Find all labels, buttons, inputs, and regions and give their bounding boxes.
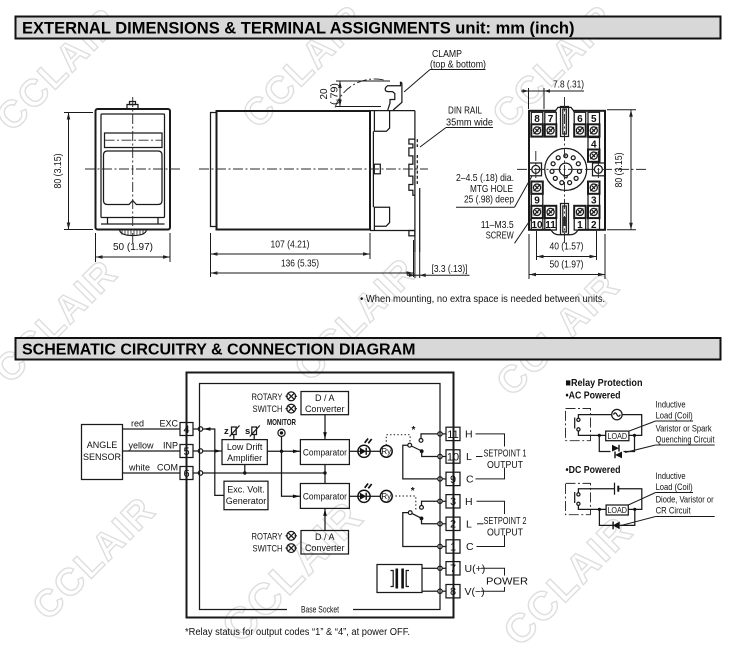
svg-text:4: 4 — [183, 424, 189, 436]
svg-text:3: 3 — [450, 496, 456, 508]
svg-text:Comparator: Comparator — [303, 448, 347, 458]
svg-text:*Relay status for output codes: *Relay status for output codes “1” & “4”… — [185, 627, 410, 638]
svg-text:white: white — [128, 463, 150, 473]
svg-text:OUTPUT: OUTPUT — [487, 527, 523, 539]
svg-text:Ry: Ry — [381, 447, 391, 456]
svg-text:SWITCH: SWITCH — [253, 544, 283, 554]
svg-text:INP: INP — [163, 441, 178, 451]
svg-text:OUTPUT: OUTPUT — [487, 459, 523, 471]
svg-text:(.79): (.79) — [329, 83, 341, 105]
svg-text:LOAD: LOAD — [607, 505, 627, 515]
svg-text:10: 10 — [531, 220, 543, 231]
svg-text:2: 2 — [450, 519, 456, 531]
svg-text:Ry: Ry — [381, 492, 391, 501]
svg-text:COM: COM — [157, 463, 178, 473]
svg-text:C: C — [466, 541, 474, 553]
svg-text:D / A: D / A — [315, 393, 335, 403]
svg-text:*: * — [412, 425, 416, 436]
svg-text:1: 1 — [577, 220, 583, 231]
svg-text:107 (4.21): 107 (4.21) — [271, 239, 310, 251]
svg-text:SETPOINT 2: SETPOINT 2 — [484, 515, 527, 527]
svg-text:11: 11 — [447, 429, 458, 441]
svg-text:SWITCH: SWITCH — [253, 404, 283, 414]
svg-text:SCHEMATIC CIRCUITRY & CONNECTI: SCHEMATIC CIRCUITRY & CONNECTION DIAGRAM — [22, 342, 415, 359]
svg-text:ROTARY: ROTARY — [252, 392, 283, 402]
svg-text:■Relay Protection: ■Relay Protection — [566, 377, 643, 389]
svg-text:red: red — [131, 419, 144, 429]
svg-text:z: z — [224, 426, 229, 437]
svg-text:7.8 (.31): 7.8 (.31) — [553, 79, 584, 91]
svg-text:35mm wide: 35mm wide — [446, 117, 493, 129]
svg-text:6: 6 — [183, 468, 189, 480]
svg-text:Varistor or Spark: Varistor or Spark — [656, 424, 712, 434]
svg-text:SETPOINT 1: SETPOINT 1 — [484, 448, 527, 460]
svg-text:ROTARY: ROTARY — [252, 532, 283, 542]
svg-text:[3.3 (.13)]: [3.3 (.13)] — [432, 263, 468, 275]
svg-text:50 (1.97): 50 (1.97) — [550, 259, 584, 271]
svg-text:7: 7 — [450, 563, 456, 575]
svg-text:H: H — [465, 429, 473, 441]
svg-text:POWER: POWER — [486, 576, 528, 588]
svg-text:U(+): U(+) — [465, 563, 486, 575]
svg-text:Converter: Converter — [305, 543, 345, 553]
svg-text:40 (1.57): 40 (1.57) — [550, 241, 584, 253]
svg-text:Inductive: Inductive — [656, 400, 686, 410]
svg-text:LOAD: LOAD — [608, 431, 628, 441]
svg-text:25 (.98) deep: 25 (.98) deep — [464, 194, 514, 206]
svg-text:EXC: EXC — [159, 419, 178, 429]
svg-text:CR Circuit: CR Circuit — [656, 506, 691, 516]
svg-text:SCREW: SCREW — [486, 230, 514, 242]
svg-text:Comparator: Comparator — [303, 492, 347, 502]
svg-text:Base Socket: Base Socket — [301, 605, 339, 615]
svg-text:136 (5.35): 136 (5.35) — [281, 258, 319, 270]
svg-text:Diode, Varistor or: Diode, Varistor or — [656, 495, 714, 505]
svg-text:1: 1 — [450, 541, 456, 553]
svg-text:• When mounting, no extra spac: • When mounting, no extra space is neede… — [360, 294, 605, 305]
svg-text:C: C — [466, 474, 474, 486]
svg-text:11: 11 — [545, 220, 556, 231]
svg-text:s: s — [245, 426, 250, 437]
svg-text:5: 5 — [183, 446, 189, 458]
svg-text:SENSOR: SENSOR — [83, 452, 122, 462]
svg-text:D / A: D / A — [315, 532, 335, 542]
svg-text:80 (3.15): 80 (3.15) — [52, 154, 64, 189]
svg-text:MONITOR: MONITOR — [267, 417, 296, 427]
svg-text:9: 9 — [450, 474, 456, 486]
svg-text:L: L — [466, 519, 472, 531]
svg-text:Exc. Volt.: Exc. Volt. — [227, 485, 265, 495]
svg-text:Generator: Generator — [226, 496, 267, 506]
svg-text:ANGLE: ANGLE — [87, 440, 118, 450]
svg-text:Converter: Converter — [305, 404, 345, 414]
svg-text:(top & bottom): (top & bottom) — [430, 59, 486, 71]
svg-text:EXTERNAL DIMENSIONS & TERMINAL: EXTERNAL DIMENSIONS & TERMINAL ASSIGNMEN… — [22, 20, 574, 38]
svg-text:Inductive: Inductive — [656, 471, 686, 481]
svg-text:DIN RAIL: DIN RAIL — [448, 105, 482, 117]
svg-text:*: * — [411, 486, 415, 497]
svg-text:yellow: yellow — [129, 441, 155, 451]
svg-text:Low Drift: Low Drift — [227, 442, 263, 452]
svg-text:50 (1.97): 50 (1.97) — [113, 241, 153, 253]
svg-text:Amplifier: Amplifier — [227, 453, 262, 463]
svg-text:80 (3.15): 80 (3.15) — [613, 153, 625, 188]
svg-text:Quenching Circuit: Quenching Circuit — [656, 435, 715, 445]
svg-text:Load (Coil): Load (Coil) — [656, 411, 693, 421]
svg-text:•AC Powered: •AC Powered — [566, 390, 621, 402]
svg-text:2–4.5 (.18) dia.: 2–4.5 (.18) dia. — [456, 172, 514, 184]
svg-text:Load (Coil): Load (Coil) — [656, 482, 693, 492]
svg-text:8: 8 — [450, 586, 456, 598]
svg-text:2: 2 — [591, 220, 597, 231]
svg-text:H: H — [465, 496, 473, 508]
svg-text:•DC Powered: •DC Powered — [566, 464, 621, 476]
svg-text:L: L — [466, 451, 472, 463]
svg-text:10: 10 — [447, 451, 459, 463]
svg-text:V(−): V(−) — [465, 586, 485, 598]
